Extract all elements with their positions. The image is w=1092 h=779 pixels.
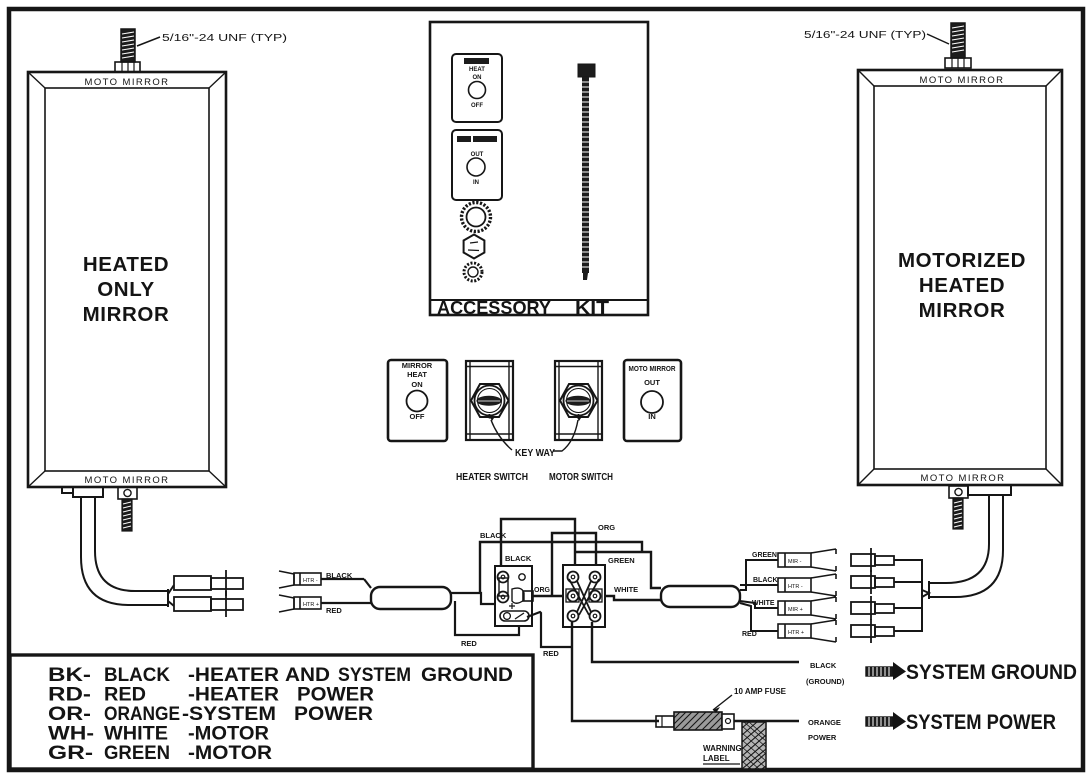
svg-text:MIRROR: MIRROR: [402, 361, 433, 370]
svg-text:HTR +: HTR +: [303, 602, 319, 608]
svg-text:KIT: KIT: [575, 298, 609, 318]
svg-text:GREEN: GREEN: [752, 552, 777, 559]
svg-text:10 AMP FUSE: 10 AMP FUSE: [734, 687, 787, 696]
svg-text:MIR -: MIR -: [788, 559, 802, 565]
svg-text:BLACK: BLACK: [810, 661, 837, 670]
svg-text:BLACK: BLACK: [326, 571, 353, 580]
svg-text:MOTO MIRROR: MOTO MIRROR: [920, 75, 1005, 86]
svg-text:WHITE: WHITE: [614, 585, 638, 594]
svg-text:IN: IN: [473, 180, 479, 186]
svg-text:ONLY: ONLY: [97, 278, 154, 301]
svg-text:HEAT: HEAT: [469, 67, 485, 73]
svg-text:WH-WHITE-MOTOR: WH-WHITE-MOTOR: [48, 724, 269, 745]
svg-text:HTR -: HTR -: [788, 584, 803, 590]
svg-text:MIRROR: MIRROR: [83, 303, 170, 326]
svg-text:WARNING: WARNING: [703, 744, 742, 753]
svg-text:RED: RED: [326, 606, 342, 615]
svg-text:RED: RED: [461, 639, 477, 648]
svg-text:MOTO MIRROR: MOTO MIRROR: [85, 77, 170, 88]
svg-text:RED: RED: [543, 649, 559, 658]
svg-text:MIRROR: MIRROR: [919, 299, 1006, 322]
svg-text:BLACK: BLACK: [480, 531, 507, 540]
svg-text:MOTO MIRROR: MOTO MIRROR: [921, 473, 1006, 484]
svg-text:HEATED: HEATED: [83, 253, 169, 276]
svg-text:GR-GREEN-MOTOR: GR-GREEN-MOTOR: [48, 743, 272, 764]
svg-text:KEY WAY: KEY WAY: [515, 448, 555, 459]
svg-text:SYSTEM GROUND: SYSTEM GROUND: [906, 661, 1077, 684]
svg-text:HTR +: HTR +: [788, 630, 804, 636]
svg-text:5/16"-24 UNF (TYP): 5/16"-24 UNF (TYP): [804, 30, 926, 41]
svg-text:MOTO MIRROR: MOTO MIRROR: [629, 364, 676, 373]
svg-text:BLACK: BLACK: [505, 554, 532, 563]
svg-text:POWER: POWER: [808, 733, 837, 742]
svg-text:SYSTEM POWER: SYSTEM POWER: [906, 711, 1056, 734]
svg-text:OFF: OFF: [471, 103, 483, 109]
svg-text:MOTOR SWITCH: MOTOR SWITCH: [549, 472, 613, 483]
svg-text:MOTO MIRROR: MOTO MIRROR: [85, 475, 170, 486]
svg-text:ORG: ORG: [534, 587, 551, 594]
svg-text:HEATED: HEATED: [919, 274, 1005, 297]
svg-text:ON: ON: [473, 75, 482, 81]
svg-text:ON: ON: [411, 380, 422, 389]
svg-text:(GROUND): (GROUND): [806, 677, 845, 686]
svg-text:RED: RED: [742, 631, 757, 638]
svg-text:MOTORIZED: MOTORIZED: [898, 249, 1026, 272]
svg-text:BLACK: BLACK: [753, 577, 778, 584]
svg-text:HTR -: HTR -: [303, 578, 318, 584]
svg-text:ORANGE: ORANGE: [808, 718, 841, 727]
svg-text:ACCESSORY: ACCESSORY: [437, 298, 551, 318]
svg-text:HEAT: HEAT: [407, 370, 427, 379]
svg-text:HEATER SWITCH: HEATER SWITCH: [456, 472, 528, 483]
svg-text:MIR +: MIR +: [788, 607, 803, 613]
svg-text:GREEN: GREEN: [608, 556, 635, 565]
svg-text:OUT: OUT: [644, 378, 660, 387]
svg-text:LABEL: LABEL: [703, 754, 730, 763]
svg-text:WHITE: WHITE: [752, 600, 775, 607]
svg-text:OFF: OFF: [410, 412, 425, 421]
svg-text:OUT: OUT: [471, 152, 484, 158]
svg-text:5/16"-24 UNF (TYP): 5/16"-24 UNF (TYP): [162, 33, 287, 44]
svg-text:ORG: ORG: [598, 523, 615, 532]
